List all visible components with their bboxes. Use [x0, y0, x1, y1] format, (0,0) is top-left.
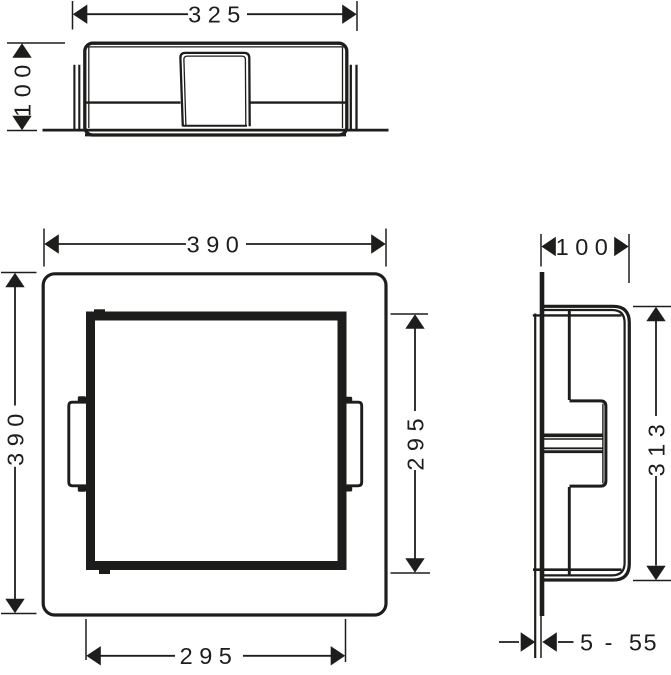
- svg-text:313: 313: [643, 418, 669, 477]
- svg-text:390: 390: [2, 407, 28, 466]
- svg-text:390: 390: [187, 231, 246, 257]
- svg-text:295: 295: [180, 643, 239, 669]
- svg-text:100: 100: [9, 58, 35, 117]
- svg-text:-: -: [605, 629, 613, 655]
- svg-text:5: 5: [580, 629, 593, 655]
- svg-text:325: 325: [188, 2, 247, 28]
- svg-text:295: 295: [402, 412, 428, 471]
- svg-text:55: 55: [629, 629, 658, 655]
- svg-text:100: 100: [556, 234, 615, 260]
